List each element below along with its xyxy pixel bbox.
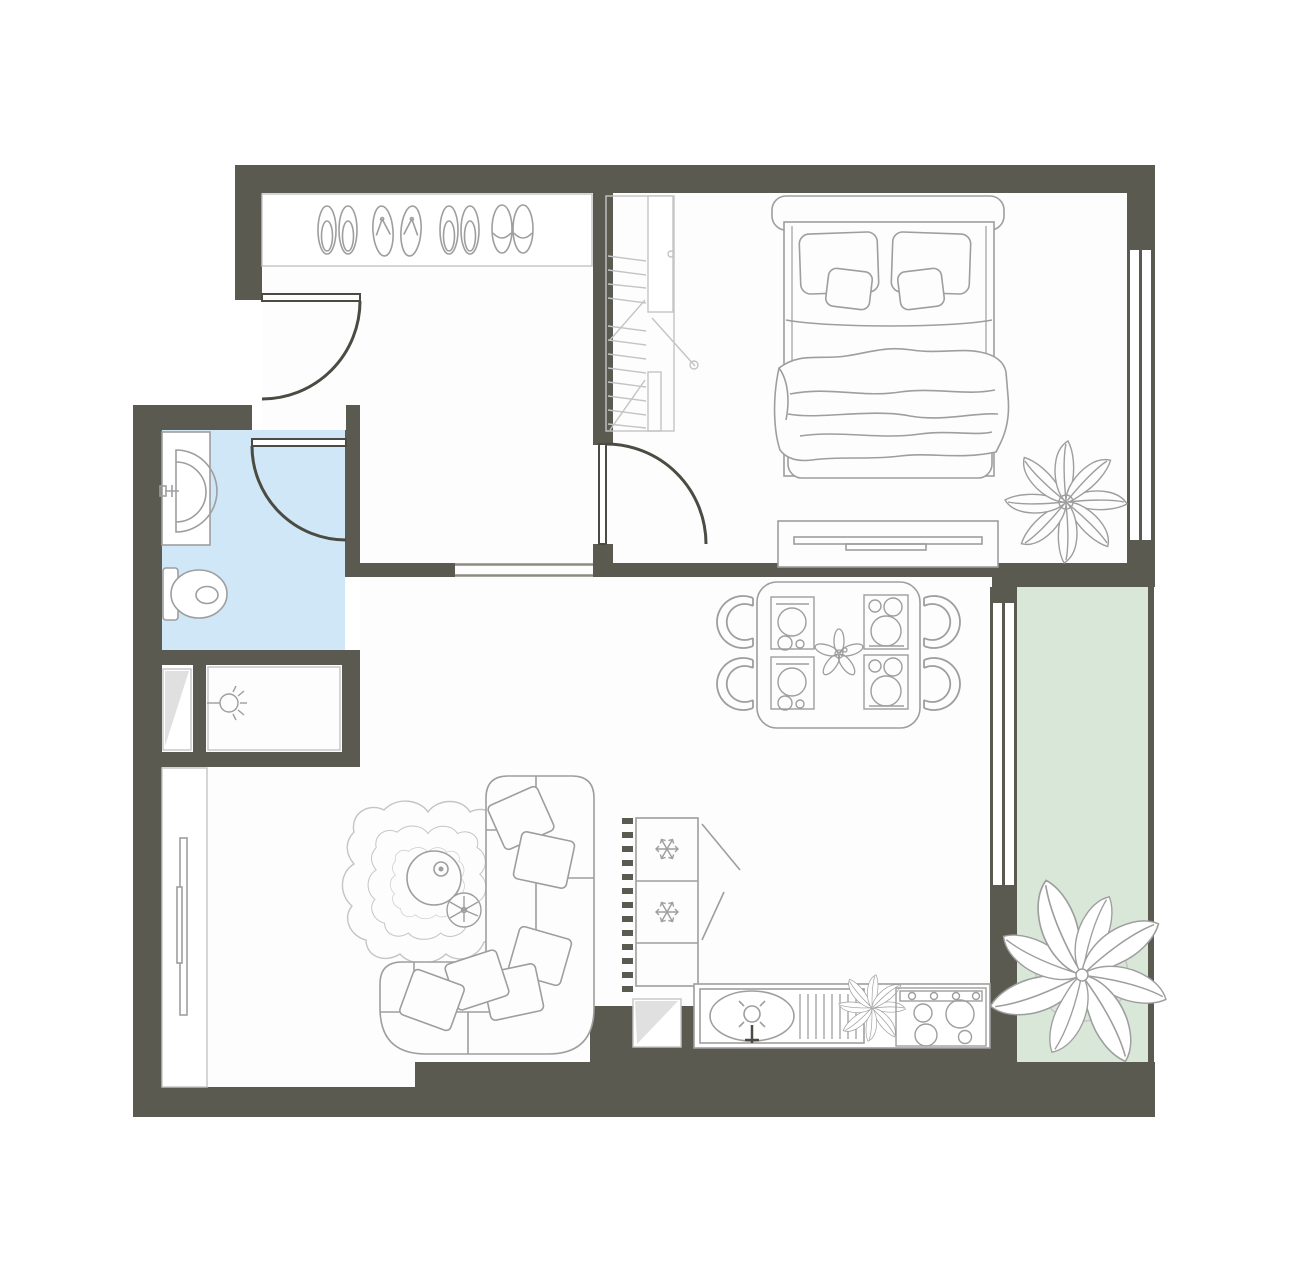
wall-bedroom-left: [593, 193, 613, 445]
wall-entry-left: [235, 165, 262, 300]
wall-shower-right: [342, 650, 360, 767]
shoe-shelf: [262, 194, 592, 266]
entry-hall: [262, 194, 592, 266]
cushion: [825, 267, 873, 310]
toilet: [163, 568, 227, 620]
wall-bottom: [133, 1087, 1155, 1117]
duct-shaft: [163, 669, 191, 750]
blanket: [775, 349, 1009, 461]
wall-top: [235, 165, 1155, 193]
wall-bathroom-right: [345, 430, 360, 577]
kitchen-balcony-window: [993, 603, 1014, 885]
washbasin: [160, 432, 217, 545]
bedroom-plant: [1005, 441, 1127, 563]
kitchen-vent-shaft: [633, 999, 681, 1047]
wall-shower-bottom: [133, 752, 360, 767]
cushion: [897, 267, 945, 310]
bedroom-window: [1130, 250, 1151, 540]
tv-stand: [778, 521, 998, 567]
wall-under-counter: [690, 1048, 992, 1062]
wall-bath-shower-divider: [162, 650, 360, 665]
shower-room-floor: [206, 665, 342, 752]
dining-table: [757, 582, 920, 728]
wall-living-hall-left: [357, 563, 455, 577]
kitchen-counter: [694, 974, 990, 1048]
floor-plan-canvas: [0, 0, 1290, 1280]
apartment-floor-plan: [0, 0, 1290, 1280]
side-table: [447, 893, 481, 927]
wall-shaft-divider: [193, 665, 206, 752]
wall-bottom-step: [415, 1062, 1155, 1087]
double-bed: [772, 196, 1009, 478]
wall-bathroom-top-stub: [346, 405, 360, 430]
